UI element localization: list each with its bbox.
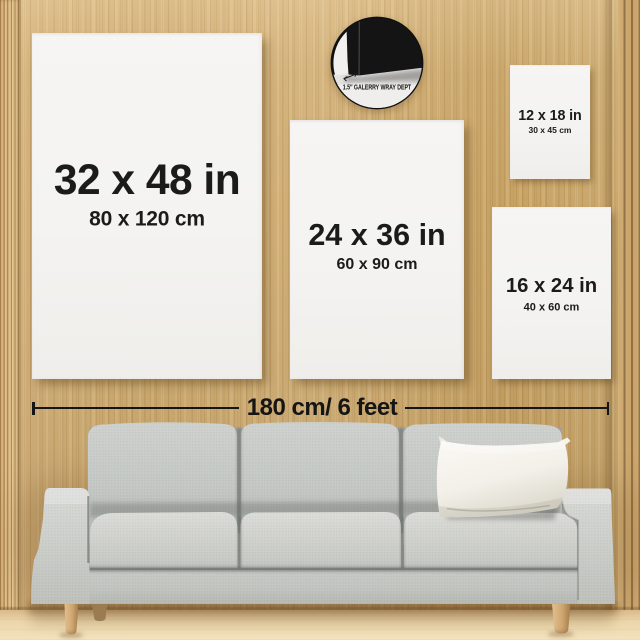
svg-text:1.5″ GALERRY WRAY DEPT: 1.5″ GALERRY WRAY DEPT [343, 84, 411, 92]
